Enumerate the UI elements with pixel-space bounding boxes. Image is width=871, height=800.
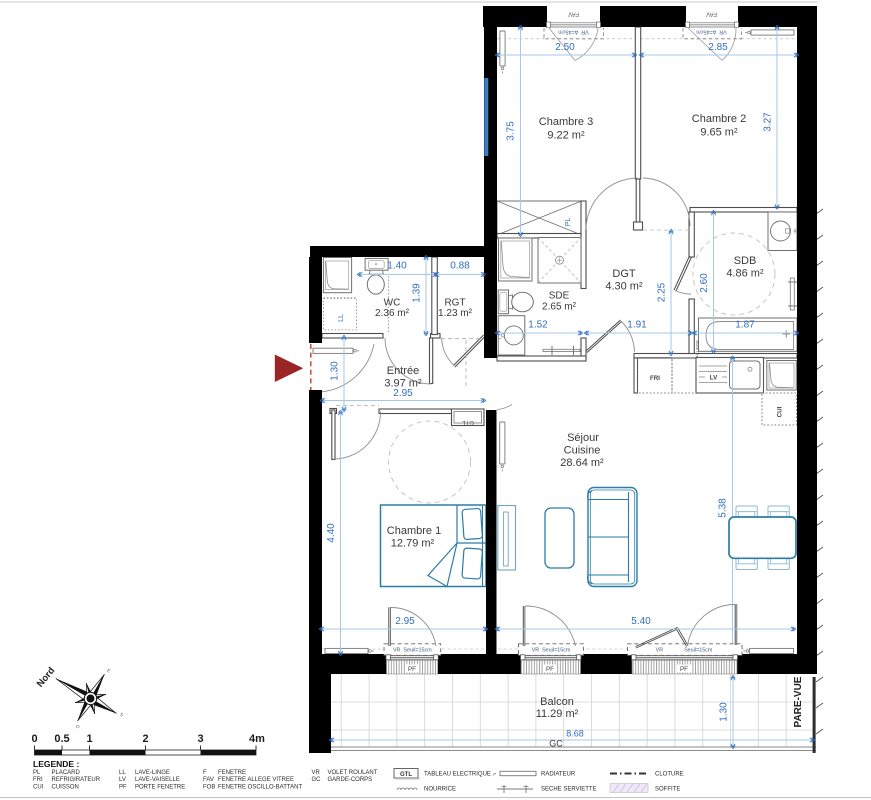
- svg-text:2.36 m²: 2.36 m²: [375, 308, 410, 319]
- svg-text:LL: LL: [119, 770, 126, 776]
- svg-text:Séjour: Séjour: [567, 432, 599, 444]
- svg-text:DGT: DGT: [612, 268, 636, 280]
- svg-text:VR Seuil=15cm: VR Seuil=15cm: [532, 648, 571, 654]
- svg-text:VR A=45cm: VR A=45cm: [558, 29, 589, 35]
- svg-text:VOLET ROULANT: VOLET ROULANT: [328, 770, 378, 776]
- svg-text:RADIATEUR: RADIATEUR: [541, 771, 576, 777]
- svg-text:2.60: 2.60: [699, 273, 710, 293]
- svg-text:FRI: FRI: [33, 777, 43, 783]
- svg-text:GC: GC: [312, 777, 322, 783]
- svg-text:11.29 m²: 11.29 m²: [536, 708, 579, 720]
- svg-text:3.75: 3.75: [506, 121, 517, 141]
- svg-text:TABLEAU ELECTRIQUE: TABLEAU ELECTRIQUE: [424, 771, 491, 777]
- svg-text:2.95: 2.95: [395, 616, 415, 627]
- svg-text:PL: PL: [33, 770, 41, 776]
- svg-text:F: F: [203, 770, 207, 776]
- svg-text:8.68: 8.68: [566, 729, 584, 739]
- svg-text:PF: PF: [680, 666, 688, 673]
- svg-text:FRI: FRI: [650, 375, 660, 382]
- svg-text:CUISSON: CUISSON: [52, 785, 79, 791]
- svg-text:1.87: 1.87: [735, 320, 755, 331]
- svg-text:FAV: FAV: [568, 11, 579, 17]
- svg-text:SDE: SDE: [549, 291, 570, 302]
- svg-text:12.79 m²: 12.79 m²: [391, 538, 435, 550]
- svg-text:FOB: FOB: [203, 785, 215, 791]
- svg-text:FENETRE ALLEGE VITREE: FENETRE ALLEGE VITREE: [218, 777, 294, 783]
- svg-text:0.5: 0.5: [54, 733, 69, 745]
- svg-text:LAVE-VAISELLE: LAVE-VAISELLE: [135, 777, 180, 783]
- svg-text:CLOTURE: CLOTURE: [655, 771, 684, 777]
- svg-text:GTL: GTL: [462, 419, 474, 425]
- svg-text:GC: GC: [549, 739, 563, 749]
- svg-text:1.30: 1.30: [330, 361, 341, 381]
- svg-text:LEGENDE :: LEGENDE :: [33, 759, 79, 769]
- svg-text:CUI: CUI: [777, 406, 784, 417]
- svg-text:Chambre 2: Chambre 2: [692, 113, 746, 125]
- svg-text:WC: WC: [384, 298, 401, 309]
- svg-text:Entrée: Entrée: [387, 365, 419, 377]
- svg-text:1.40: 1.40: [387, 261, 407, 272]
- svg-text:FENETRE OSCILLO-BATTANT: FENETRE OSCILLO-BATTANT: [218, 785, 302, 791]
- svg-text:Cuisine: Cuisine: [564, 445, 601, 457]
- svg-text:REFRIGIRATEUR: REFRIGIRATEUR: [52, 777, 101, 783]
- svg-text:2.95: 2.95: [393, 388, 413, 399]
- svg-text:RGT: RGT: [444, 298, 465, 309]
- svg-text:3: 3: [197, 733, 203, 745]
- svg-text:VR A=45cm: VR A=45cm: [696, 29, 727, 35]
- svg-text:GARDE-CORPS: GARDE-CORPS: [328, 777, 373, 783]
- svg-text:1.52: 1.52: [528, 320, 548, 331]
- svg-text:LV: LV: [710, 375, 718, 382]
- svg-text:VR Seuil=15cm: VR Seuil=15cm: [393, 648, 432, 654]
- svg-text:NOURRICE: NOURRICE: [424, 786, 456, 792]
- svg-text:2.65 m²: 2.65 m²: [542, 302, 577, 313]
- svg-text:SOFFITE: SOFFITE: [655, 786, 680, 792]
- svg-text:VR: VR: [312, 770, 321, 776]
- svg-text:5.40: 5.40: [631, 616, 651, 627]
- svg-text:0: 0: [31, 733, 37, 745]
- svg-text:5.38: 5.38: [718, 498, 729, 518]
- svg-text:1.30: 1.30: [719, 702, 730, 722]
- svg-text:Chambre 3: Chambre 3: [539, 116, 593, 128]
- svg-text:PF: PF: [546, 666, 554, 673]
- svg-text:2: 2: [142, 733, 148, 745]
- svg-text:SDB: SDB: [734, 255, 757, 267]
- svg-text:GTL: GTL: [400, 772, 412, 778]
- svg-text:4m: 4m: [249, 733, 265, 745]
- svg-text:FENETRE: FENETRE: [218, 770, 246, 776]
- svg-text:3.97 m²: 3.97 m²: [384, 378, 422, 390]
- svg-text:2.25: 2.25: [657, 282, 668, 302]
- svg-text:0.88: 0.88: [450, 261, 470, 272]
- svg-text:9.22 m²: 9.22 m²: [547, 130, 585, 142]
- svg-text:1.39: 1.39: [412, 283, 423, 303]
- svg-text:1: 1: [86, 733, 92, 745]
- svg-text:9.65 m²: 9.65 m²: [700, 127, 738, 139]
- svg-text:LAVE-LINGE: LAVE-LINGE: [135, 770, 170, 776]
- svg-text:VR Seuil=15cm: VR Seuil=15cm: [656, 648, 713, 654]
- svg-text:4.30 m²: 4.30 m²: [605, 281, 643, 293]
- svg-text:2.85: 2.85: [708, 42, 728, 53]
- svg-text:PF: PF: [119, 785, 127, 791]
- svg-text:PORTE FENETRE: PORTE FENETRE: [135, 785, 185, 791]
- svg-text:LV: LV: [119, 777, 126, 783]
- svg-text:LL: LL: [338, 314, 345, 322]
- svg-text:2.50: 2.50: [555, 42, 575, 53]
- svg-text:PARE-VUE: PARE-VUE: [793, 676, 804, 727]
- svg-text:FAV: FAV: [203, 777, 214, 783]
- svg-text:FAV: FAV: [706, 11, 717, 17]
- svg-text:SECHE SERVIETTE: SECHE SERVIETTE: [541, 786, 597, 792]
- svg-text:4.40: 4.40: [326, 523, 337, 543]
- svg-text:Chambre 1: Chambre 1: [387, 525, 441, 537]
- svg-text:Balcon: Balcon: [540, 696, 574, 708]
- svg-text:28.64 m²: 28.64 m²: [560, 457, 604, 469]
- svg-text:CUI: CUI: [33, 785, 44, 791]
- svg-text:PF: PF: [408, 666, 416, 673]
- svg-text:1.91: 1.91: [627, 320, 647, 331]
- svg-text:4.86 m²: 4.86 m²: [726, 268, 764, 280]
- svg-text:PL: PL: [565, 218, 572, 227]
- svg-text:1.23 m²: 1.23 m²: [438, 308, 473, 319]
- svg-text:PLACARD: PLACARD: [52, 770, 81, 776]
- svg-text:3.27: 3.27: [763, 112, 774, 132]
